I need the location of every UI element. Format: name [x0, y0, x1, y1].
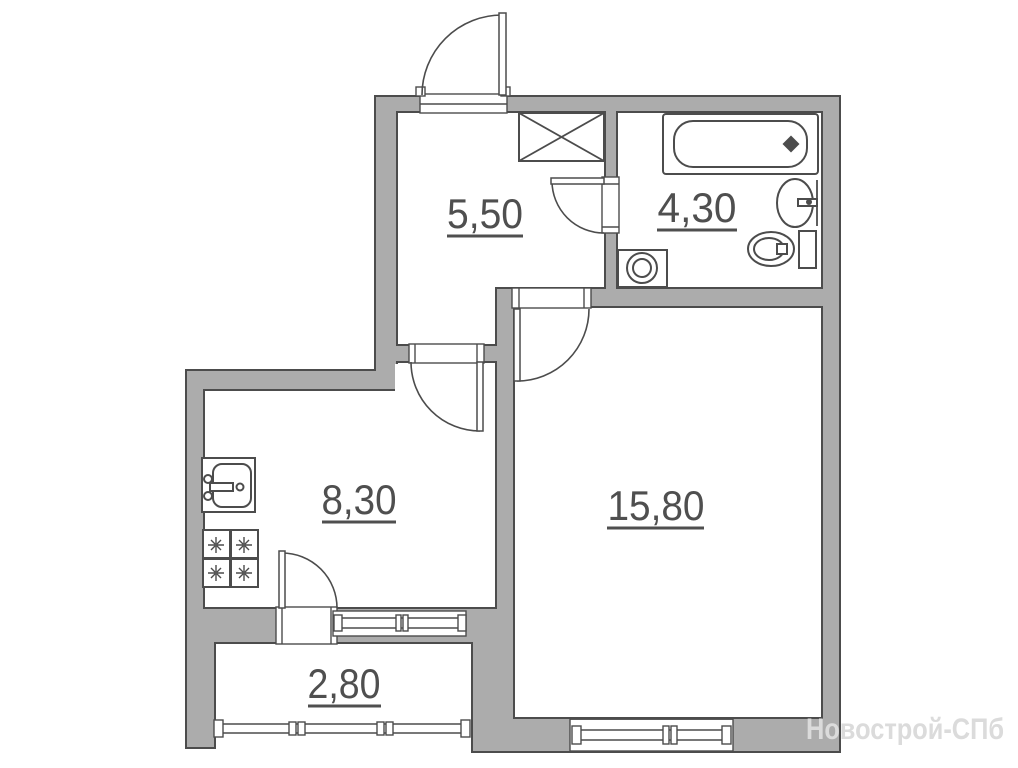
living-room-window [570, 719, 733, 751]
stove [203, 530, 258, 587]
room-label-hallway: 5,50 [447, 190, 523, 237]
kitchen-door-threshold [409, 344, 484, 363]
living-area-text: 15,80 [608, 482, 705, 529]
hallway-area-text: 5,50 [447, 190, 523, 237]
entrance-jamb-left [416, 87, 425, 96]
room-label-living: 15,80 [607, 482, 705, 529]
room-label-balcony: 2,80 [308, 660, 382, 707]
room-label-kitchen: 8,30 [322, 476, 397, 523]
bathroom-area-text: 4,30 [658, 184, 737, 231]
screenshot-root: 5,50 4,30 8,30 15,80 2,80 Новострой-СПб [0, 0, 1018, 768]
kitchen-area-text: 8,30 [322, 476, 397, 523]
kitchen-window [333, 611, 466, 636]
bathtub [663, 114, 818, 174]
washing-machine [618, 250, 667, 287]
wardrobe [519, 113, 604, 161]
living-door-threshold [512, 288, 591, 308]
room-label-bathroom: 4,30 [657, 184, 737, 231]
balcony-area-text: 2,80 [308, 660, 381, 707]
toilet [748, 231, 816, 268]
entrance-door [422, 13, 506, 95]
watermark-text: Новострой-СПб [806, 713, 1004, 746]
balcony-door-threshold [276, 607, 337, 644]
bathroom-door-threshold [602, 177, 619, 233]
kitchen-sink [202, 458, 255, 512]
floor-plan: 5,50 4,30 8,30 15,80 2,80 Новострой-СПб [0, 0, 1018, 768]
